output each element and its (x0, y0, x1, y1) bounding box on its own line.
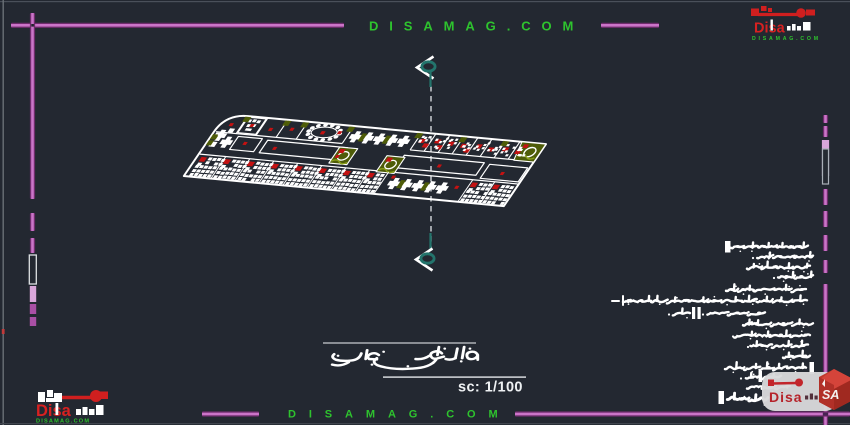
svg-text:DISAMAG.COM: DISAMAG.COM (752, 36, 821, 42)
svg-text:DISAMAG.COM: DISAMAG.COM (369, 19, 584, 34)
svg-text:Disa: Disa (769, 389, 803, 405)
svg-text:DISAMAG.COM: DISAMAG.COM (36, 419, 90, 425)
svg-text:sc: 1/100: sc: 1/100 (458, 380, 523, 396)
svg-text:Disa: Disa (36, 402, 72, 420)
svg-text:Disa: Disa (754, 21, 786, 37)
svg-text:SA: SA (822, 388, 839, 402)
svg-text:DISAMAG.COM: DISAMAG.COM (288, 409, 511, 421)
